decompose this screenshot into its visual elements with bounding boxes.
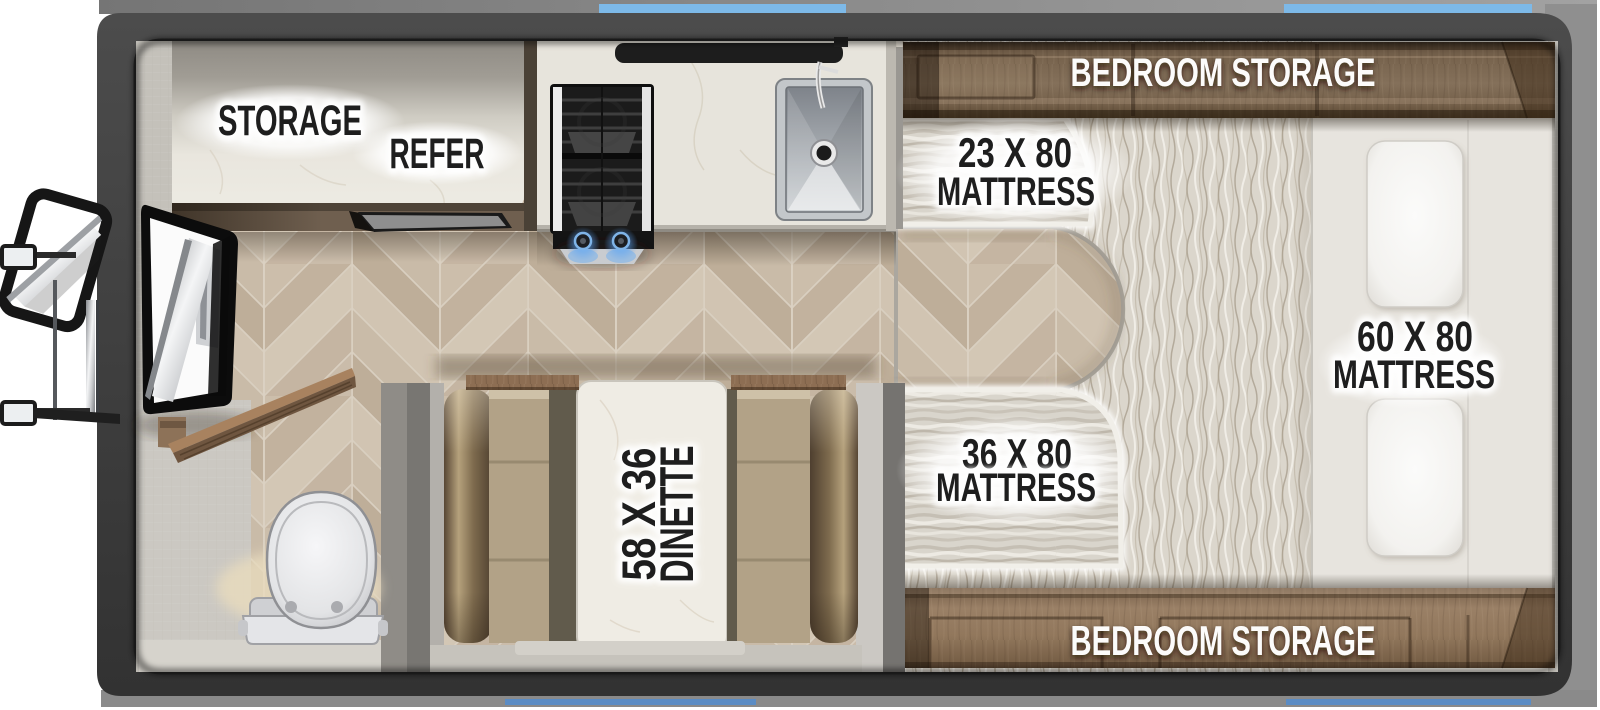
svg-text:MATTRESS: MATTRESS — [1333, 353, 1495, 397]
svg-text:MATTRESS: MATTRESS — [936, 466, 1096, 510]
svg-text:BEDROOM STORAGE: BEDROOM STORAGE — [1071, 617, 1376, 664]
svg-text:MATTRESS: MATTRESS — [937, 170, 1095, 214]
svg-text:STORAGE: STORAGE — [218, 97, 362, 145]
svg-text:DINETTE: DINETTE — [650, 446, 703, 583]
svg-text:REFER: REFER — [390, 130, 485, 178]
svg-text:23 X 80: 23 X 80 — [958, 129, 1072, 176]
svg-text:BEDROOM STORAGE: BEDROOM STORAGE — [1071, 51, 1376, 95]
